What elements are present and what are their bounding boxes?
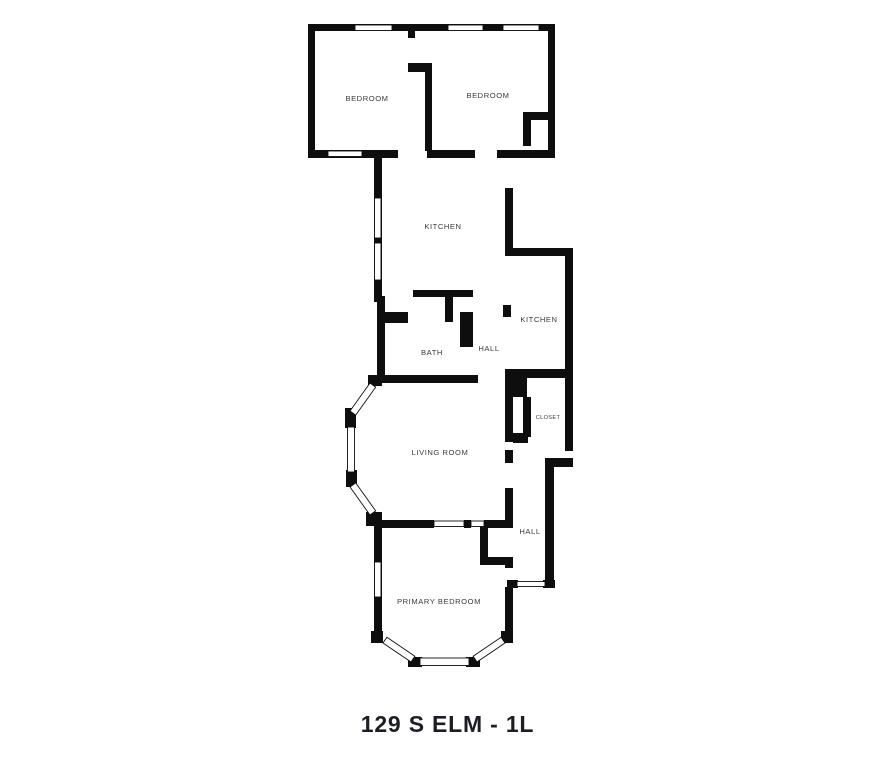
room-label-bedroom-left: BEDROOM	[345, 94, 388, 103]
room-label-primary-bedroom: PRIMARY BEDROOM	[397, 597, 481, 606]
page-background: BEDROOM BEDROOM KITCHEN KITCHEN BATH HAL…	[0, 0, 895, 768]
room-label-hall-lower: HALL	[519, 527, 540, 536]
room-label-kitchen-right: KITCHEN	[520, 315, 557, 324]
room-label-living-room: LIVING ROOM	[412, 448, 469, 457]
floor-plan: BEDROOM BEDROOM KITCHEN KITCHEN BATH HAL…	[0, 0, 895, 768]
room-label-bath: BATH	[421, 348, 443, 357]
room-label-closet: CLOSET	[536, 415, 561, 421]
windows	[328, 25, 545, 666]
room-label-hall-middle: HALL	[478, 344, 499, 353]
walls	[308, 24, 573, 667]
room-label-kitchen-main: KITCHEN	[424, 222, 461, 231]
plan-caption: 129 S ELM - 1L	[0, 711, 895, 738]
room-label-bedroom-right: BEDROOM	[466, 91, 509, 100]
